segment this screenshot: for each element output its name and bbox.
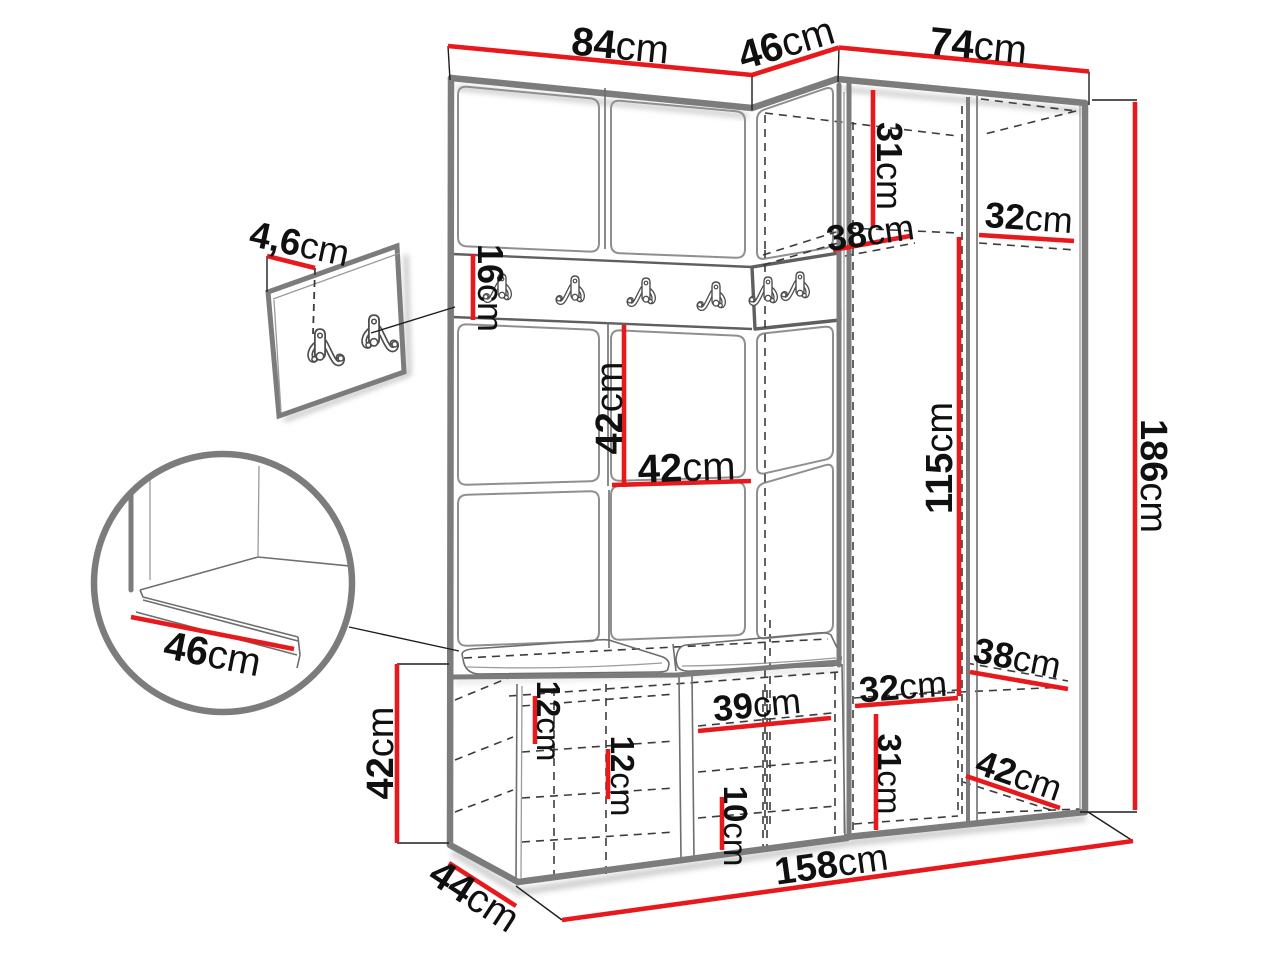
svg-text:186cm: 186cm [1132,419,1174,533]
svg-text:12cm: 12cm [604,736,641,817]
svg-text:32cm: 32cm [984,194,1075,241]
svg-text:10cm: 10cm [717,786,754,867]
svg-text:42cm: 42cm [589,362,631,455]
svg-text:32cm: 32cm [858,663,949,711]
svg-text:42cm: 42cm [360,707,402,800]
svg-text:115cm: 115cm [919,402,961,514]
svg-text:42cm: 42cm [637,444,736,491]
svg-text:31cm: 31cm [871,734,908,815]
svg-text:31cm: 31cm [869,122,910,210]
svg-text:84cm: 84cm [569,19,671,72]
svg-text:12cm: 12cm [530,681,567,762]
svg-text:16cm: 16cm [470,244,511,332]
svg-text:39cm: 39cm [711,680,803,729]
svg-text:74cm: 74cm [927,19,1029,72]
